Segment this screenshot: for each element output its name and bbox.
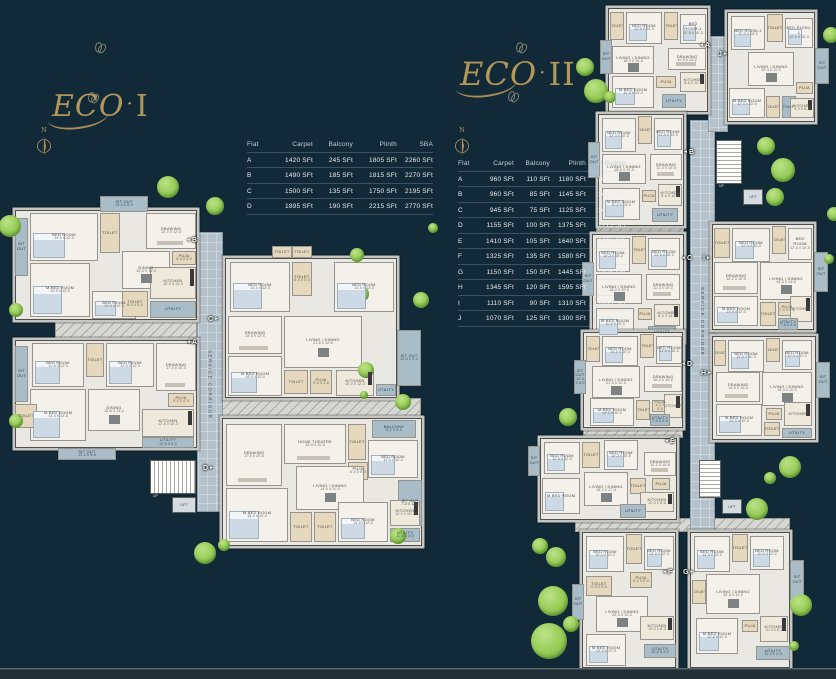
room-toilet: TOILET9'-6 X 5'-6 — [586, 576, 612, 596]
room-bed-room: BED ROOM12'-0 X 10'-0 — [648, 238, 680, 270]
unit-marker-E: ◄E — [664, 437, 680, 446]
table-cell: J — [458, 315, 476, 322]
room-label: KITCHEN — [664, 404, 682, 409]
table-cell: 2195 SFt — [397, 188, 433, 195]
room-label: TOILET — [714, 351, 726, 356]
room-sit-out: SIT OUT14'-0 X 5'-0 — [100, 196, 148, 212]
room-label: TOILET — [586, 347, 600, 352]
room-dimension: 11'-0 X 10'-3 — [738, 33, 757, 37]
room-label: KITCHEN — [792, 307, 811, 312]
room-sit-out: SIT OUT — [815, 48, 829, 84]
lift: LIFT — [172, 497, 196, 513]
table-cell: 1110 SFt — [476, 300, 514, 307]
stair-up-label: UP — [702, 498, 707, 502]
table-cell: 2215 SFt — [353, 203, 397, 210]
room-bed-room-1: BED ROOM-112'-0 X 10'-3 — [680, 14, 706, 44]
table-cell: F — [458, 253, 476, 260]
tree-icon — [546, 547, 566, 567]
room-drawing: DRAWING14'-0 X 10'-0 — [716, 372, 760, 402]
room-dimension: 12'-0 X 10'-0 — [741, 245, 761, 249]
room-utility: UTILITY7'-0 X 4'-0 — [650, 414, 670, 426]
room-kitchen: KITCHEN10'-2 X 8'-0 — [640, 616, 674, 640]
room-bed-room: BED ROOM12'-0 X 10'-0 — [654, 118, 682, 150]
room-label: UTILITY — [657, 213, 673, 218]
room-toilet: TOILET — [714, 340, 726, 366]
room-living-dining: LIVING / DINING20'-4 X 11'-0 — [748, 52, 794, 86]
room-toilet: TOILET — [772, 226, 786, 254]
room-toilet: TOILET — [272, 246, 292, 258]
table-cell: 1180 SFt — [550, 176, 586, 183]
room-utility: UTILITY — [620, 504, 646, 518]
table-cell: 1580 SFt — [550, 253, 586, 260]
room-puja: PUJA5'-2 X 4'-0 — [168, 393, 194, 407]
tree-icon — [0, 215, 21, 237]
room-m-bed-room: M.BED ROOM15'-0 X 10'-2 — [226, 488, 288, 542]
table-cell: E — [458, 238, 476, 245]
table-cell: 150 SFt — [514, 269, 550, 276]
unit-marker-C: C► — [208, 315, 224, 324]
room-sit-out: SIT OUT — [15, 346, 28, 402]
room-dimension: 11'-0 X 10'-0 — [653, 287, 672, 291]
room-kitchen: KITCHEN — [784, 402, 812, 426]
room-kitchen: KITCHEN12'-0 X 10'-0 — [142, 409, 194, 437]
room-label: TOILET — [317, 525, 332, 530]
table-cell: 1640 SFt — [550, 238, 586, 245]
room-label: UTILITY — [666, 99, 682, 104]
room-dimension: 12'-0 X 10'-0 — [659, 350, 679, 354]
room-dimension: 11'-0 X 12'-2 — [757, 553, 776, 557]
room-bed-room: BED ROOM12'-0 X 12'-0 — [544, 442, 580, 474]
table-cell: 1750 SFt — [353, 188, 397, 195]
tree-icon — [413, 292, 429, 308]
dining-table-icon — [614, 292, 625, 301]
table-cell: 75 SFt — [514, 207, 550, 214]
room-m-bed-room: M.BED ROOM14'-9 X 12'-0 — [714, 296, 758, 326]
room-m-bed-room: M.BED ROOM12'-0 X 11'-0 — [729, 88, 765, 118]
room-dimension: 7'-0 X 12'-0 — [401, 503, 419, 507]
table-cell: 1325 SFt — [476, 253, 514, 260]
room-toilet: TOILET — [640, 334, 654, 358]
room-bed-room: BED ROOM10'-2 X 12'-2 — [586, 536, 624, 572]
room-dimension: 14'-0 X 12'-0 — [48, 415, 68, 419]
page-title-eco1: ECO·I — [52, 92, 149, 122]
marker-arrow-icon: ◄ — [681, 362, 686, 367]
room-utility: UTILITY10'-2 X 4'-0 — [644, 644, 676, 658]
room-label: TOILET — [638, 128, 652, 133]
room-label: SIT OUT — [589, 155, 599, 164]
table-row: B1490 SFt185 SFt1815 SFt2270 SFt — [247, 168, 433, 184]
dining-table-icon — [782, 393, 793, 402]
room-dimension: 14'-0 X 12'-0 — [353, 522, 373, 526]
room-label: SIT OUT — [573, 597, 583, 606]
kitchen-counter-icon — [668, 618, 672, 630]
table-cell: 1500 SFt — [269, 188, 313, 195]
room-label: PUJA — [639, 312, 650, 317]
room-dimension: 20'-4 X 11'-0 — [723, 594, 742, 598]
room-dimension: 15'-6 X 14'-2 — [104, 410, 124, 414]
room-dimension: 14'-0 X 12'-0 — [245, 335, 265, 339]
room-m-bed-room: M.BED ROOM14'-0 X 12'-0 — [228, 356, 282, 396]
dining-table-icon — [628, 63, 639, 72]
room-toilet: TOILET — [626, 534, 642, 564]
room-drawing: DRAWING16'-2 X 10'-6 — [644, 366, 682, 392]
room-label: TOILET — [294, 250, 309, 255]
room-label: TOILET — [692, 590, 706, 595]
room-label: SIT OUT — [791, 575, 803, 584]
compass-north-label: N — [454, 126, 470, 134]
room-dimension: 12'-0 X 10'-0 — [654, 254, 674, 258]
room-label: M.BED ROOM — [547, 494, 575, 499]
room-dimension: 12'-0 X 8'-6 — [648, 502, 666, 506]
room-label: TOILET — [632, 248, 646, 253]
title-eco1-numeral: I — [136, 89, 149, 124]
room-dimension: 14'-0 X 12'-0 — [50, 290, 70, 294]
room-dimension: 19'-3 X 13'-0 — [776, 281, 796, 285]
table-row: B960 SFt85 SFt1145 SFt1435 SFt — [458, 187, 626, 203]
room-kitchen: KITCHEN8'-0 X 10'-0 — [658, 184, 682, 206]
room-label: TOILET — [640, 344, 654, 349]
room-dimension: 10'-2 X 4'-0 — [651, 651, 669, 655]
room-label: SIT OUT — [583, 274, 593, 283]
room-kitchen: KITCHEN11'-0 X 8'-2 — [760, 616, 788, 642]
room-dimension: 17'-0 X 15'-0 — [166, 367, 186, 371]
table-cell: 1895 SFt — [269, 203, 313, 210]
sofa-icon — [651, 468, 668, 472]
tree-icon — [428, 223, 438, 233]
butterfly-icon — [514, 40, 528, 54]
room-dimension: 12'-0 X 10'-3 — [789, 36, 809, 40]
marker-letter: A — [705, 42, 710, 49]
room-toilet: TOILET — [767, 14, 783, 42]
room-label: UTILITY — [378, 388, 394, 393]
room-dimension: 12'-3 X 10'-3 — [609, 135, 629, 139]
sofa-icon — [165, 383, 186, 387]
dining-table-icon — [781, 285, 792, 294]
table-cell: 100 SFt — [514, 222, 550, 229]
stair-up-label: UP — [153, 494, 158, 498]
room-dimension: 12'-2 X 10'-6 — [650, 464, 670, 468]
room-dimension: 17'-0 X 20'-6 — [244, 455, 264, 459]
room-dimension: 10'-0 X 12'-0 — [345, 383, 365, 387]
room-dimension: 12'-3 X 10'-3 — [603, 255, 623, 259]
marker-arrow-icon: ◄ — [683, 150, 688, 155]
room-kitchen: KITCHEN10'-0 X 12'-0 — [336, 370, 374, 396]
room-dimension: 8'-0 X 10'-0 — [661, 195, 679, 199]
table-cell: Carpet — [269, 141, 313, 148]
room-dimension: 13'-2 X 5'-6 — [78, 454, 96, 458]
room-drawing: DRAWING11'-0 X 10'-0 — [650, 154, 682, 180]
room-puja: PUJA — [742, 620, 758, 632]
table-cell: 1490 SFt — [269, 172, 313, 179]
room-dimension: 14'-0 X 10'-0 — [729, 420, 749, 424]
room-label: TOILET — [583, 453, 598, 458]
room-dimension: 14'-0 X 11'-0 — [736, 356, 755, 360]
room-label: TOILET — [349, 440, 364, 445]
table-cell: 135 SFt — [313, 188, 353, 195]
room-bed-room: BED ROOM14'-0 X 12'-0 — [644, 536, 674, 570]
kitchen-counter-icon — [668, 494, 672, 504]
table-cell: B — [458, 191, 476, 198]
room-dimension: 11'-6 X 12'-0 — [48, 365, 67, 369]
room-living-dining: LIVING / DINING20'-4 X 11'-0 — [706, 574, 760, 614]
room-m-bed-room: M.BED ROOM14'-0 X 10'-0 — [716, 404, 762, 436]
table-cell: 1145 SFt — [550, 191, 586, 198]
room-label: TOILET — [636, 408, 650, 413]
marker-letter: B — [192, 237, 197, 244]
room-dimension: 9'-0 X 8'-0 — [794, 108, 810, 112]
room-label: TOILET — [732, 546, 747, 551]
table-cell: 1595 SFt — [550, 284, 586, 291]
table-cell: 245 SFt — [313, 157, 353, 164]
room-dimension: 11'-0 X 10'-0 — [623, 92, 642, 96]
room-dimension: 16'-0 X 11'-0 — [777, 389, 796, 393]
room-label: SIT OUT — [601, 52, 611, 61]
driveway-hatch — [575, 518, 790, 532]
room-dimension: 16'-2 X 10'-6 — [653, 379, 673, 383]
room-dimension: 10'-2 X 12'-2 — [595, 554, 615, 558]
sofa-icon — [653, 292, 671, 296]
room-dimension: 5'-2 X 4'-0 — [176, 258, 192, 262]
table-cell: 1300 SFt — [550, 315, 586, 322]
room-bed-room: BED ROOM14'-0 X 12'-0 — [230, 262, 290, 312]
table-header-row: FlatCarpetBalconyPlinthS-Builtup — [458, 156, 626, 172]
table-header-row: FlatCarpetBalconyPlinthSBA — [247, 137, 433, 153]
marker-letter: F — [668, 569, 672, 576]
table-row: C945 SFt75 SFt1125 SFt1405 SFt — [458, 203, 626, 219]
room-utility: UTILITY11'-0 X 4'-0 — [756, 646, 790, 660]
staircase: UP — [716, 140, 742, 184]
room-dimension: 11'-0 X 10'-0 — [656, 167, 675, 171]
room-dimension: 14'-0 X 10'-0 — [602, 412, 622, 416]
room-label: TOILET — [293, 525, 308, 530]
room-dimension: 14'-9 X 12'-0 — [726, 311, 746, 315]
room-dimension: 12'-3 X 10'-5 — [611, 455, 631, 459]
marker-arrow-icon: ◄ — [662, 570, 667, 575]
table-cell: B — [247, 172, 269, 179]
room-toilet: TOILET — [766, 338, 780, 362]
room-sit-out: SIT OUT12'-0 X 6'-0 — [574, 360, 586, 394]
kitchen-counter-icon — [368, 372, 372, 385]
room-bed-room-1: BED ROOM-111'-0 X 10'-3 — [731, 16, 765, 50]
unit-marker-F: ◄F — [662, 568, 678, 577]
room-dimension: 6'-2 X 4'-0 — [386, 429, 402, 433]
room-dimension: 12'-0 X 10'-0 — [658, 134, 678, 138]
room-dimension: 10'-0 X 12'-0 — [163, 283, 183, 287]
room-m-bed-room: M.BED ROOM11'-0 X 10'-0 — [612, 76, 654, 108]
marker-letter: E — [670, 438, 675, 445]
room-dimension: 12'-0 X 12'-0 — [104, 305, 124, 309]
compass-needle-icon — [454, 135, 470, 157]
room-dimension: 12'-0 X 5'-0 — [159, 443, 177, 447]
marker-arrow-icon: ► — [689, 570, 694, 575]
room-bed-room-1: BED ROOM-112'-0 X 10'-3 — [785, 18, 813, 48]
room-home-theatre: HOME THEATRE13'-0 X 11'-0 — [284, 424, 346, 464]
room-drawing: DRAWING11'-0 X 10'-0 — [646, 274, 680, 300]
room-label: TOILET — [664, 24, 678, 29]
service-corridor-label: SERVICE CORRIDOR — [208, 350, 213, 419]
room-kitchen: KITCHEN10'-0 X 12'-0 — [150, 267, 196, 299]
room-sit-out: SIT OUT12'-6 X 4'-2 — [397, 330, 421, 386]
table-cell: H — [458, 284, 476, 291]
table-cell: 1070 SFt — [476, 315, 514, 322]
marker-arrow-icon: ► — [209, 466, 214, 471]
room-dimension: 8'-6 X 10'-0 — [684, 82, 702, 86]
table-cell: Flat — [458, 160, 476, 167]
room-drawing: DRAWING14'-0 X 12'-0 — [228, 316, 282, 354]
room-dimension: 14'-0 X 12'-0 — [354, 287, 374, 291]
marker-letter: I — [703, 255, 705, 262]
room-toilet: TOILET — [284, 370, 308, 394]
dining-table-icon — [109, 415, 120, 424]
unit-marker-G: G► — [683, 568, 699, 577]
room-puja: PUJA6'-2 X 5'-0 — [630, 572, 652, 588]
room-label: TOILET — [102, 231, 117, 236]
room-dimension: 12'-6 X 4'-2 — [400, 358, 418, 362]
sofa-icon — [239, 346, 268, 350]
room-dimension: 12'-0 X 11'-0 — [737, 103, 756, 107]
table-cell: 2050 SFt — [586, 238, 626, 245]
room-puja: PUJA — [638, 308, 652, 320]
table-cell: C — [247, 188, 269, 195]
tree-icon — [395, 394, 411, 410]
room-dimension: 14'-0 X 12'-0 — [54, 237, 74, 241]
room-drawing: DRAWING14'-2 X 10'-0 — [714, 262, 758, 294]
dining-table-icon — [141, 274, 152, 283]
title-eco1-dot: · — [124, 91, 135, 115]
unit-marker-C: ◄C — [681, 254, 697, 263]
room-dimension: 11'-0 X 4'-0 — [764, 653, 781, 657]
table-cell: SBA — [397, 141, 433, 148]
room-toilet: TOILET — [314, 512, 336, 542]
title-eco1-text: ECO — [52, 89, 124, 124]
tree-icon — [531, 623, 567, 659]
table-cell: 945 SFt — [476, 207, 514, 214]
area-table-eco1: FlatCarpetBalconyPlinthSBAA1420 SFt245 S… — [247, 137, 433, 215]
room-dimension: 7'-6 X 4'-0 — [780, 324, 796, 328]
room-drawing: DRAWING17'-0 X 15'-0 — [156, 343, 196, 391]
room-m-bed-room: M.BED ROOM14'-0 X 12'-0 — [30, 389, 86, 441]
room-label: SIT OUT — [816, 61, 828, 70]
room-dimension: 18'-2 X 17'-4 — [596, 489, 616, 493]
sofa-icon — [238, 478, 268, 482]
room-label: TOILET — [766, 348, 780, 353]
room-dimension: 11'-0 X 10'-2 — [677, 59, 696, 63]
room-toilet: TOILET — [586, 336, 600, 362]
unit-marker-J: J► — [718, 50, 734, 59]
room-dimension: 12'-0 X 12'-0 — [596, 650, 616, 654]
tree-icon — [827, 207, 836, 221]
room-toilet: TOILET — [86, 343, 104, 377]
room-m-bed-room: M.BED ROOM12'-2 X 12'-0 — [696, 618, 738, 654]
compass-needle-icon — [36, 135, 52, 157]
table-cell: Carpet — [476, 160, 514, 167]
room-label: PUJA — [643, 194, 654, 199]
sofa-icon — [297, 456, 330, 460]
table-row: D1895 SFt190 SFt2215 SFt2770 SFt — [247, 199, 433, 215]
room-m-bed-room: M.BED ROOM14'-0 X 10'-0 — [590, 398, 634, 426]
title-eco2-numeral: II — [548, 55, 575, 93]
table-cell: 90 SFt — [514, 300, 550, 307]
room-toilet: TOILET — [610, 12, 624, 40]
kitchen-counter-icon — [190, 269, 194, 286]
room-label: PUJA — [660, 80, 671, 85]
room-label: TOILET — [18, 414, 33, 419]
table-cell: 1805 SFt — [353, 157, 397, 164]
room-drawing: DRAWING17'-0 X 20'-6 — [226, 424, 282, 486]
table-cell: 190 SFt — [313, 203, 353, 210]
room-toilet: TOILET — [766, 96, 780, 118]
marker-arrow-icon: ◄ — [186, 340, 191, 345]
room-label: TOILET — [626, 547, 641, 552]
dining-table-icon — [611, 386, 622, 395]
room-label: TOILET — [760, 312, 775, 317]
area-table-eco2: FlatCarpetBalconyPlinthS-BuiltupA960 SFt… — [458, 156, 626, 327]
marker-arrow-icon: ► — [706, 256, 711, 261]
room-dimension: 9'-6 X 5'-6 — [591, 586, 607, 590]
marker-arrow-icon: ► — [723, 52, 728, 57]
room-label: SIT OUT — [529, 456, 539, 465]
room-dimension: 12'-0 X 6'-0 — [575, 378, 585, 386]
room-dimension: 12'-0 X 11'-4 — [383, 459, 402, 463]
room-label: PUJA — [655, 482, 666, 487]
marker-arrow-icon: ► — [707, 371, 712, 376]
table-row: A960 SFt110 SFt1180 SFt1470 SFt — [458, 172, 626, 188]
dining-table-icon — [619, 172, 630, 181]
room-label: TOILET — [610, 24, 624, 29]
room-dimension: 14'-0 X 12'-0 — [245, 376, 265, 380]
room-bed-room: BED ROOM12'-0 X 12'-2 — [694, 536, 730, 572]
room-label: TOILET — [714, 241, 729, 246]
room-dimension: 12'-0 X 10'-3 — [634, 28, 654, 32]
room-label: TOILET — [274, 250, 289, 255]
room-bed-room: BED ROOM14'-0 X 12'-0 — [338, 502, 388, 542]
table-cell: A — [247, 157, 269, 164]
tree-icon — [360, 391, 368, 399]
room-kitchen: KITCHEN8'-6 X 10'-0 — [680, 72, 706, 92]
room-dimension: 12'-2 X 12'-0 — [707, 636, 727, 640]
table-row: E1410 SFt105 SFt1640 SFt2050 SFt — [458, 234, 626, 250]
room-label: TOILET — [772, 238, 786, 243]
tree-icon — [538, 586, 568, 616]
table-cell: 2260 SFt — [397, 157, 433, 164]
table-cell: 960 SFt — [476, 191, 514, 198]
table-cell: 105 SFt — [514, 238, 550, 245]
room-toilet: TOILET — [632, 236, 646, 264]
room-living-dining: LIVING / DINING21'-0 X 12'-0 — [592, 366, 640, 398]
room-dimension: 5'-2 X 4'-0 — [173, 400, 189, 404]
butterfly-icon — [93, 40, 107, 54]
tree-icon — [823, 27, 836, 43]
room-dimension: 20'-4 X 11'-0 — [761, 69, 780, 73]
room-dimension: 6'-2 X 5'-0 — [633, 580, 649, 584]
page-title-eco2: ECO·II — [460, 58, 576, 90]
room-dimension: 14'-0 X 10'-0 — [728, 387, 748, 391]
room-puja: PUJA — [642, 190, 656, 202]
marker-letter: H — [701, 370, 706, 377]
table-cell: D — [458, 222, 476, 229]
room-bed-room: BED ROOM12'-0 X 10'-3 — [626, 12, 662, 44]
room-label: TOILET — [288, 380, 303, 385]
table-cell: 1445 SFt — [550, 269, 586, 276]
room-bed-room: BED ROOM12'-3 X 10'-5 — [604, 440, 638, 470]
marker-arrow-icon: ◄ — [664, 439, 669, 444]
sofa-icon — [652, 384, 672, 388]
room-dimension: 12'-0 X 12'-0 — [552, 458, 572, 462]
sofa-icon — [725, 394, 748, 398]
room-label: PUJA — [768, 412, 779, 417]
table-cell: Plinth — [550, 160, 586, 167]
room-dimension: 12'-0 X 10'-0 — [158, 423, 178, 427]
